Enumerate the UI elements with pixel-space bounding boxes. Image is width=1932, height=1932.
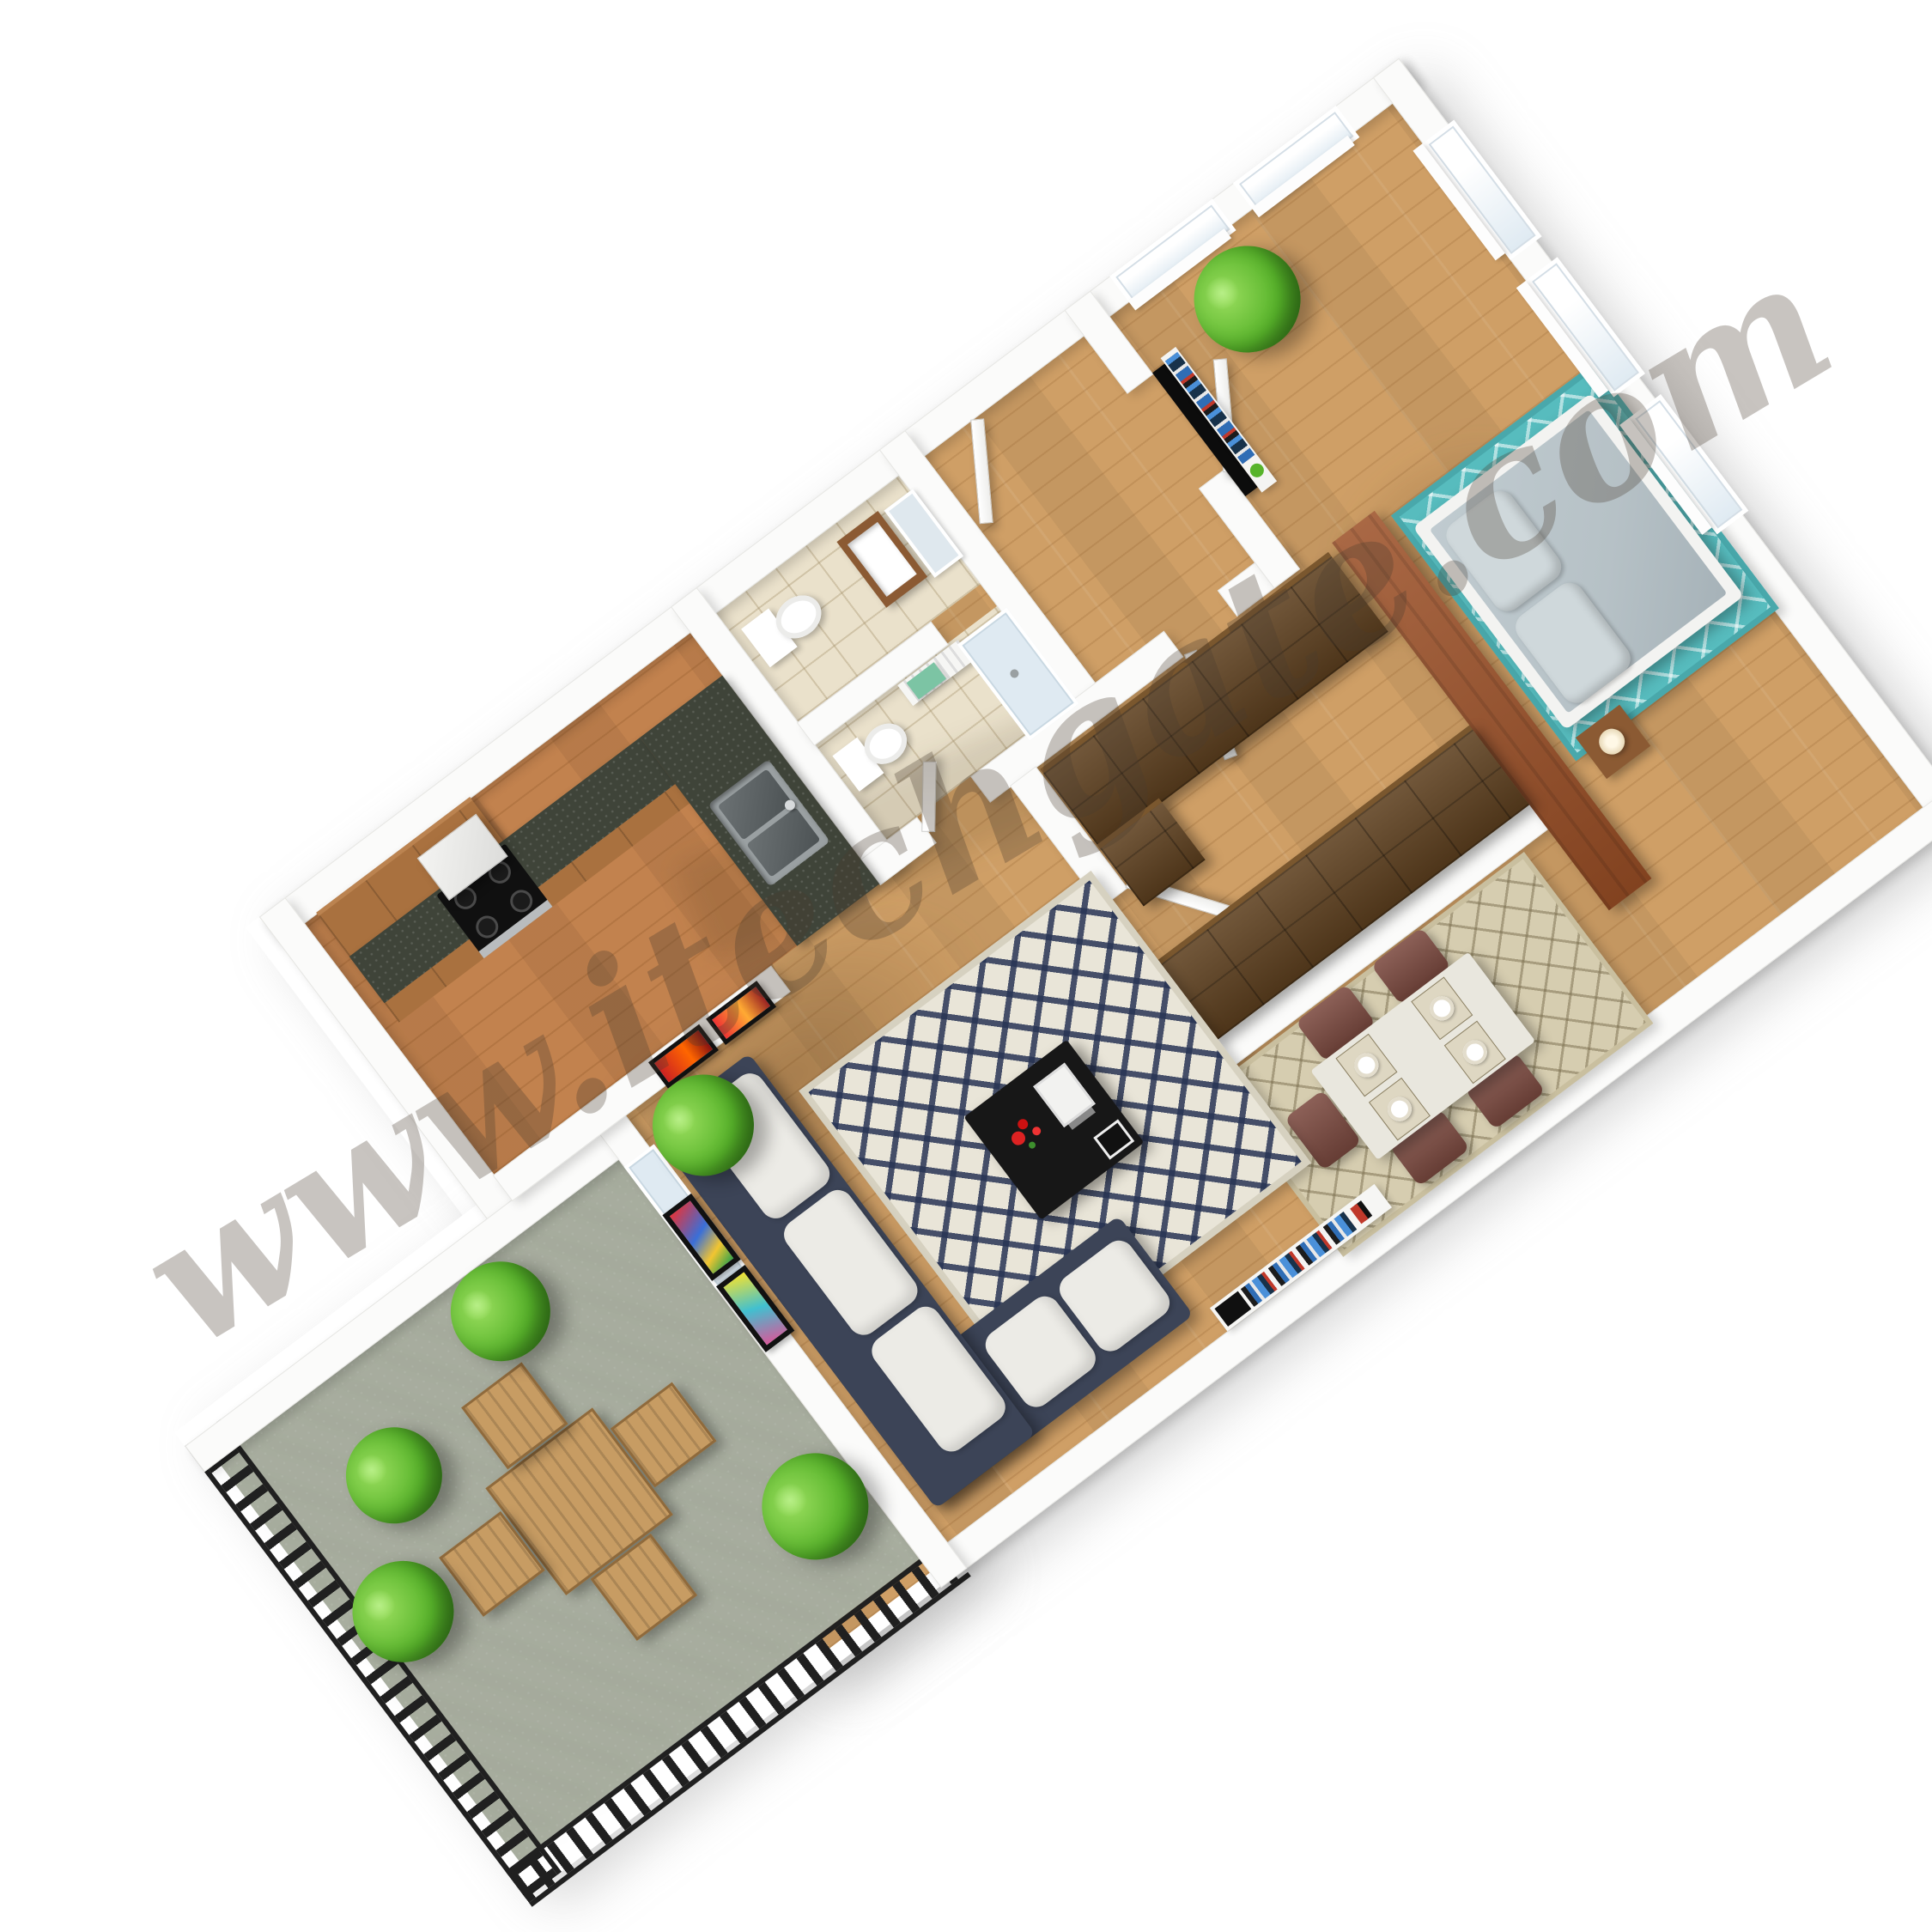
plate: [1350, 1048, 1383, 1082]
magazine: [1033, 1063, 1096, 1128]
console-figurine: [1350, 1204, 1368, 1224]
plate: [1425, 992, 1459, 1025]
shelf-plant: [1248, 461, 1267, 480]
red-flowers: [1009, 1128, 1028, 1147]
plate: [1382, 1092, 1416, 1126]
decor-box: [1093, 1119, 1134, 1159]
plate: [1458, 1036, 1492, 1069]
floor-plan-scene: www.itechgate.com: [0, 0, 1932, 1932]
